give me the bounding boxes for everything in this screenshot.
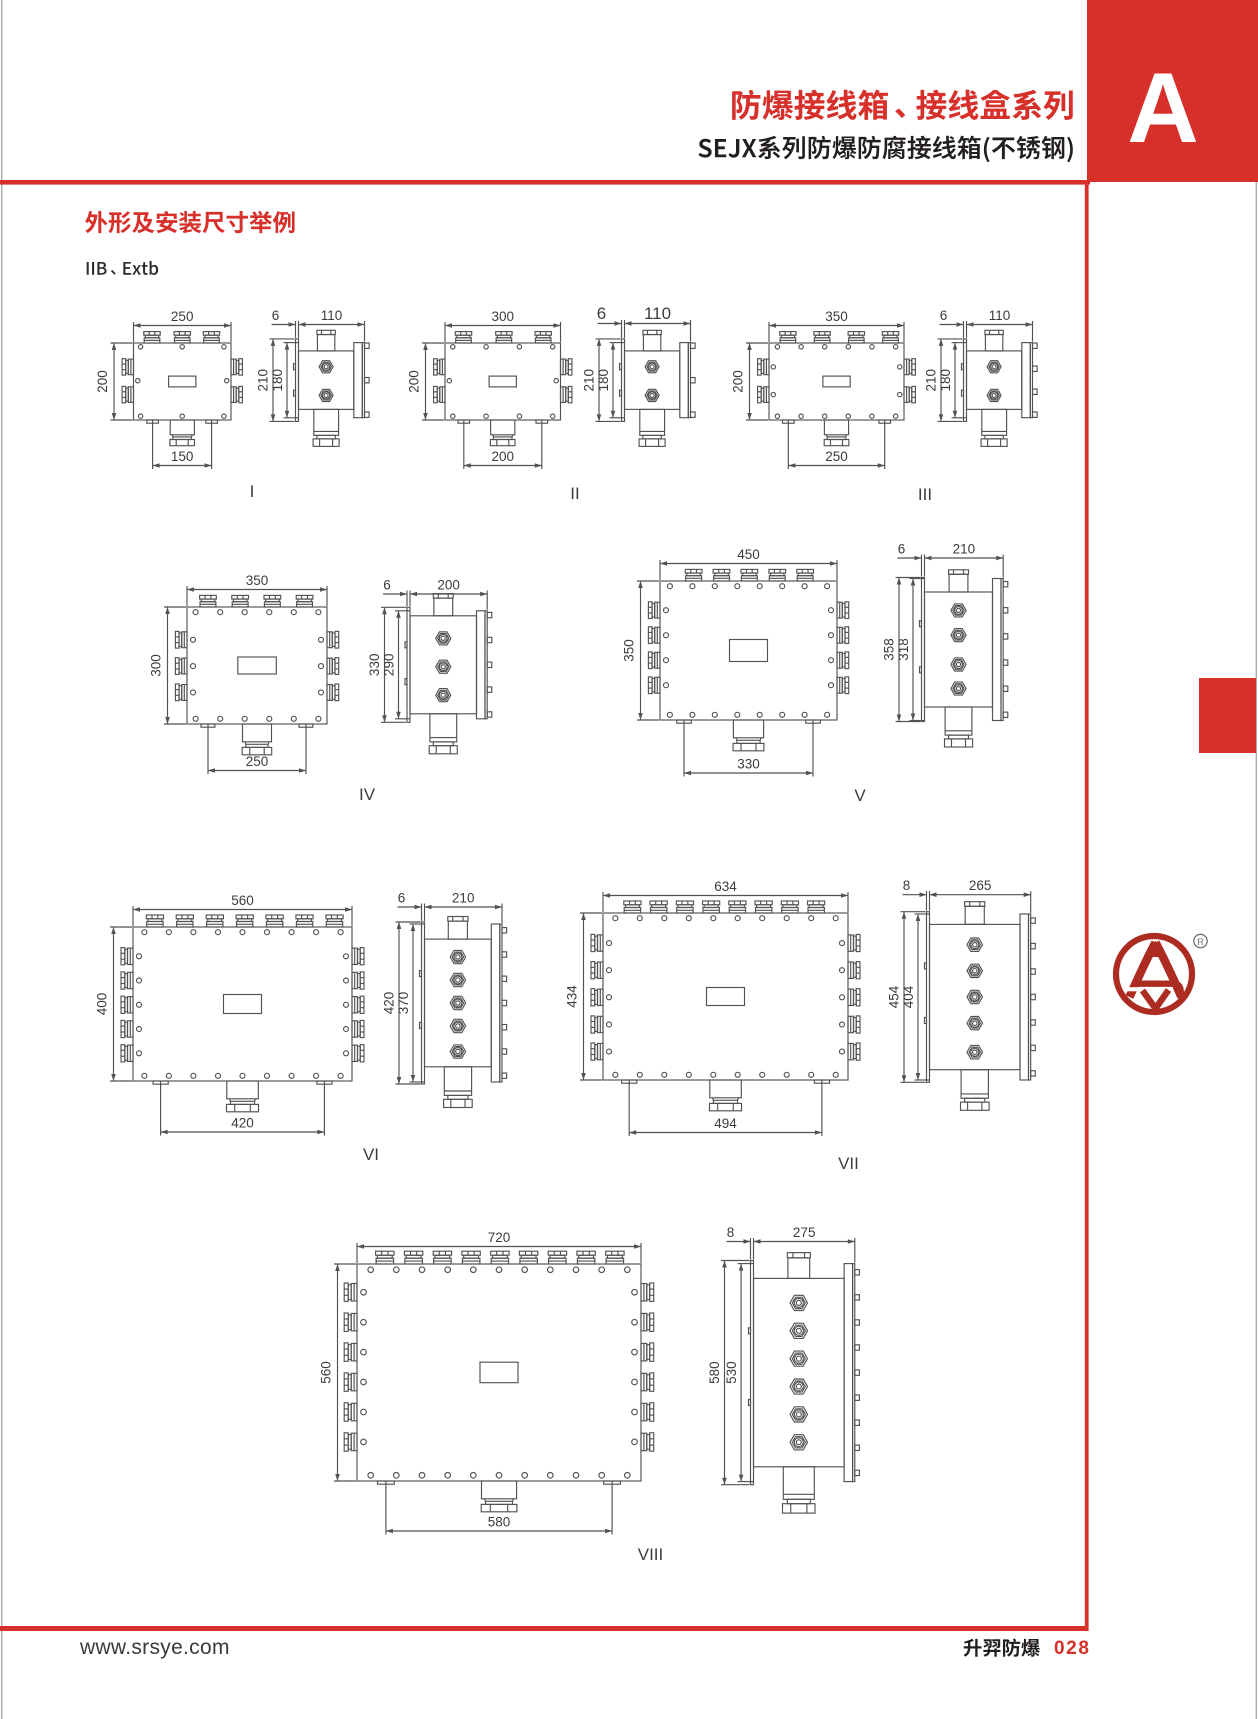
svg-text:350: 350 <box>622 639 637 662</box>
svg-text:350: 350 <box>246 573 269 588</box>
svg-text:www.srsye.com: www.srsye.com <box>79 1636 230 1659</box>
svg-text:200: 200 <box>492 449 515 464</box>
svg-text:8: 8 <box>903 878 911 893</box>
svg-text:720: 720 <box>488 1230 511 1245</box>
svg-text:210: 210 <box>256 369 271 392</box>
svg-text:6: 6 <box>597 304 606 323</box>
svg-text:290: 290 <box>382 654 397 677</box>
svg-text:420: 420 <box>231 1116 254 1131</box>
svg-text:530: 530 <box>724 1361 739 1384</box>
svg-text:454: 454 <box>887 985 902 1008</box>
svg-text:300: 300 <box>492 309 515 324</box>
svg-text:275: 275 <box>793 1225 816 1240</box>
svg-text:028: 028 <box>1054 1638 1091 1659</box>
svg-text:180: 180 <box>938 369 953 392</box>
svg-text:210: 210 <box>953 542 976 557</box>
svg-text:180: 180 <box>270 369 285 392</box>
svg-text:III: III <box>918 485 932 504</box>
svg-text:R: R <box>1197 937 1204 948</box>
svg-text:6: 6 <box>940 308 948 323</box>
svg-text:6: 6 <box>898 542 906 557</box>
svg-text:VI: VI <box>363 1145 379 1164</box>
svg-text:8: 8 <box>727 1225 735 1240</box>
svg-text:IV: IV <box>359 785 376 804</box>
svg-text:200: 200 <box>731 370 746 393</box>
svg-text:110: 110 <box>989 308 1011 323</box>
svg-text:250: 250 <box>825 449 848 464</box>
svg-text:I: I <box>250 482 255 501</box>
svg-text:VIII: VIII <box>638 1545 664 1564</box>
svg-text:404: 404 <box>901 985 916 1008</box>
svg-text:6: 6 <box>383 578 391 593</box>
svg-text:V: V <box>854 786 866 805</box>
svg-text:560: 560 <box>231 893 254 908</box>
svg-text:200: 200 <box>95 370 110 393</box>
svg-text:II: II <box>570 484 579 503</box>
svg-text:180: 180 <box>596 369 611 392</box>
svg-text:400: 400 <box>95 993 110 1016</box>
svg-text:580: 580 <box>488 1515 511 1530</box>
svg-text:494: 494 <box>714 1116 737 1131</box>
svg-text:350: 350 <box>825 309 848 324</box>
svg-text:200: 200 <box>407 370 422 393</box>
svg-text:330: 330 <box>737 757 760 772</box>
svg-text:265: 265 <box>969 878 992 893</box>
svg-text:358: 358 <box>882 638 897 661</box>
svg-text:6: 6 <box>272 308 280 323</box>
svg-text:6: 6 <box>398 891 406 906</box>
svg-text:318: 318 <box>896 638 911 661</box>
svg-text:580: 580 <box>707 1361 722 1384</box>
svg-text:150: 150 <box>171 449 194 464</box>
svg-text:300: 300 <box>149 654 164 677</box>
svg-text:330: 330 <box>367 654 382 677</box>
svg-text:110: 110 <box>644 304 671 323</box>
svg-text:370: 370 <box>396 992 411 1015</box>
svg-text:210: 210 <box>582 369 597 392</box>
svg-text:450: 450 <box>737 547 760 562</box>
svg-text:210: 210 <box>452 891 475 906</box>
svg-text:250: 250 <box>246 754 269 769</box>
svg-text:560: 560 <box>319 1361 334 1384</box>
svg-text:634: 634 <box>714 879 737 894</box>
svg-text:210: 210 <box>924 369 939 392</box>
svg-text:250: 250 <box>171 309 194 324</box>
svg-text:434: 434 <box>565 985 580 1008</box>
svg-text:VII: VII <box>838 1154 859 1173</box>
svg-text:110: 110 <box>321 308 343 323</box>
svg-text:A: A <box>1127 52 1199 163</box>
svg-text:420: 420 <box>382 992 397 1015</box>
svg-text:200: 200 <box>437 578 460 593</box>
